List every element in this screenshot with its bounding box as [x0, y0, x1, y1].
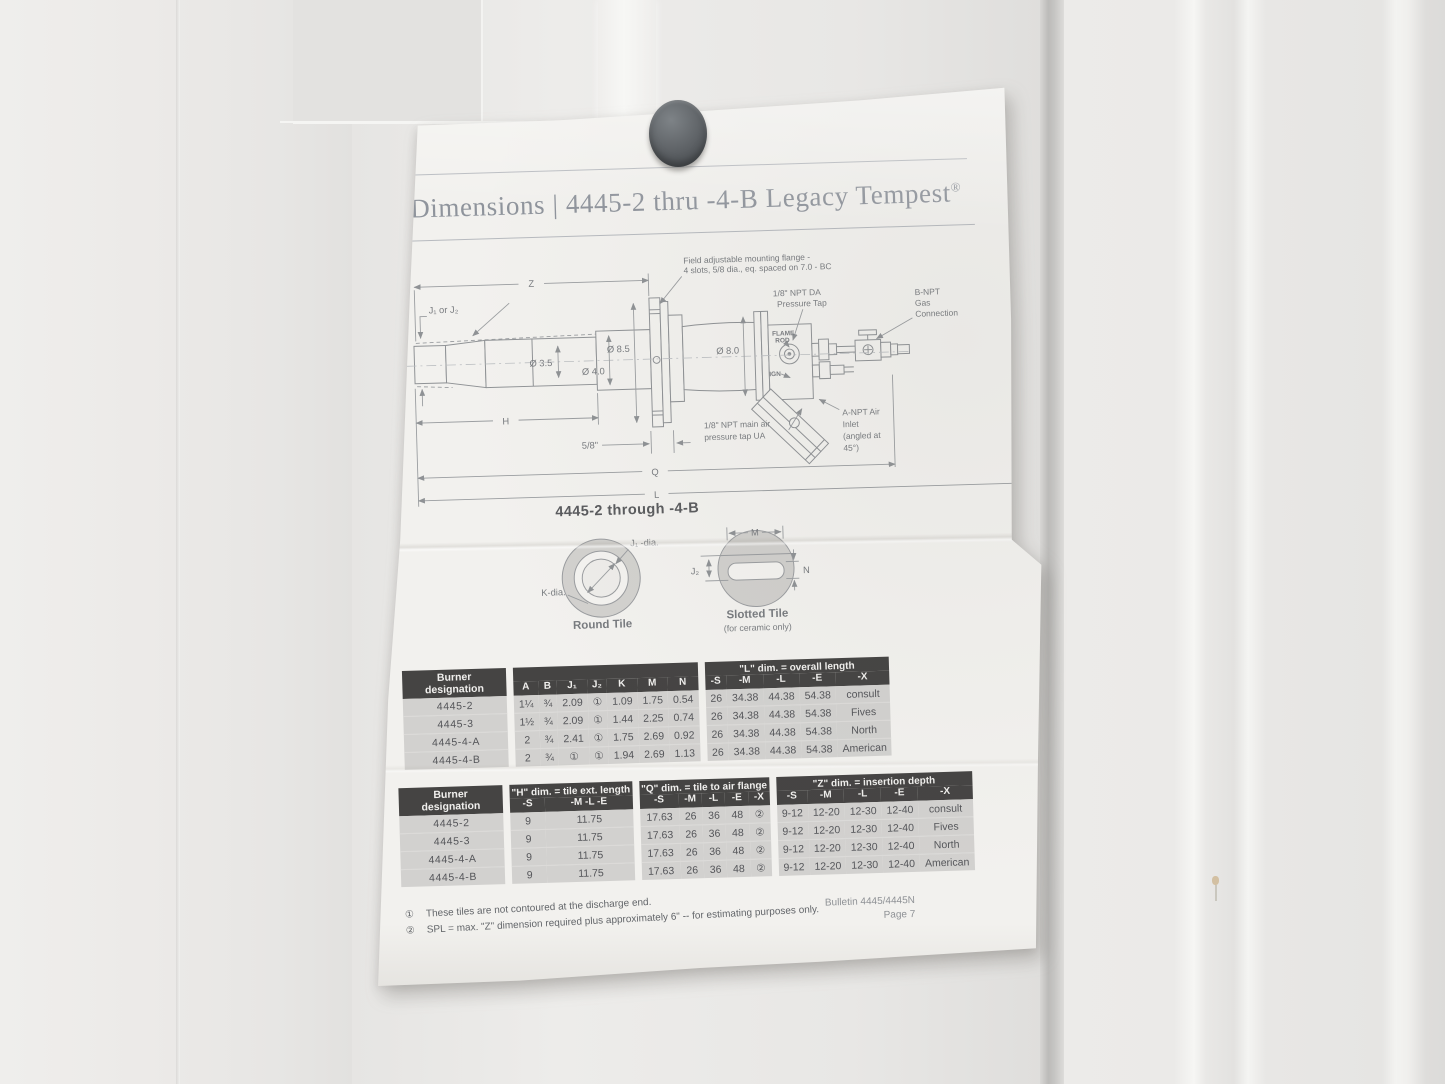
table-cell: 12-40: [881, 801, 918, 820]
table-cell: 12-30: [846, 837, 883, 856]
air-inlet-label-line4: 45°): [843, 442, 859, 452]
magnet-pin: [649, 100, 707, 167]
table-cell: 12-20: [808, 803, 845, 822]
table-cell: 17.63: [640, 808, 680, 827]
table-cell: ①: [589, 728, 609, 747]
burner-dimensions-table-1: Burnerdesignation"L" dim. = overall leng…: [402, 657, 892, 770]
table-cell: ②: [750, 841, 771, 860]
dim-z-label: Z: [528, 279, 534, 289]
table-cell: 44.38: [765, 741, 802, 760]
table-cell: 2.41: [558, 729, 589, 748]
table-cell: American: [837, 738, 892, 757]
table-cell: 44.38: [764, 723, 801, 742]
table-cell: 9: [511, 847, 547, 866]
page-title: Dimensions | 4445-2 thru -4-B Legacy Tem…: [410, 170, 962, 225]
table-cell: 34.38: [728, 724, 765, 743]
table-cell: 48: [727, 859, 751, 877]
table-cell: 44.38: [764, 705, 801, 724]
paper-sheet: Dimensions | 4445-2 thru -4-B Legacy Tem…: [370, 86, 1042, 986]
table-cell: 26: [680, 843, 704, 862]
table-cell: Fives: [836, 702, 891, 722]
table-cell: 44.38: [763, 687, 800, 706]
table-column-header: -E: [799, 672, 836, 687]
table-cell: 12-20: [809, 856, 846, 875]
table-cell: 2.69: [639, 745, 670, 763]
footnote-marker: ①: [405, 907, 418, 924]
table-cell: 9: [512, 865, 548, 884]
table-cell: 1.44: [607, 710, 638, 729]
table-corner-header: Burnerdesignation: [402, 668, 507, 699]
table-cell: 48: [726, 841, 750, 860]
table-column-header: -S: [639, 794, 678, 809]
table-cell: 0.54: [668, 690, 699, 708]
dimensions-table-1-wrap: Burnerdesignation"L" dim. = overall leng…: [402, 657, 892, 770]
table-column-header: K: [606, 678, 637, 693]
table-column-header: -S: [510, 798, 546, 813]
table-cell: 11.75: [547, 863, 635, 883]
table-cell: 54.38: [801, 740, 838, 759]
dimensions-table-2-wrap: Burnerdesignation"H" dim. = tile ext. le…: [398, 771, 974, 887]
dim-dia-4-0-label: Ø 4.0: [582, 366, 605, 377]
table-cell: 36: [704, 860, 728, 878]
table-cell: consult: [918, 799, 973, 818]
table-column-header: -L: [763, 673, 800, 688]
table-cell: 12-40: [882, 818, 919, 837]
table-cell: 1.75: [637, 691, 668, 709]
dim-j1-j2-label: J₁ or J₂: [429, 305, 459, 316]
table-cell: 26: [680, 861, 704, 879]
table-cell: 36: [703, 824, 727, 843]
table-cell: 12-30: [845, 819, 882, 838]
table-cell: American: [920, 853, 975, 872]
table-cell: 2.25: [638, 709, 669, 728]
dim-dia-3-5-label: Ø 3.5: [529, 358, 552, 369]
table-cell: 9-12: [778, 858, 810, 876]
table-cell: 54.38: [799, 686, 836, 705]
table-cell: 1.94: [608, 746, 639, 764]
table-column-header: -L: [844, 788, 881, 803]
slotted-tile-subcaption: (for ceramic only): [724, 621, 792, 633]
table-column-header: B: [538, 680, 557, 695]
table-cell: ②: [750, 859, 771, 877]
table-column-header: J₁: [557, 680, 588, 695]
dim-h-label: H: [502, 416, 509, 426]
table-cell: 12-20: [808, 820, 845, 839]
slotted-tile-j2-label: J₂: [691, 566, 700, 576]
table-cell: 17.63: [641, 861, 681, 880]
table-cell: 9-12: [777, 822, 809, 841]
table-column-header: -X: [748, 791, 769, 806]
table-column-header: J₂: [587, 679, 607, 694]
table-cell: 1.13: [669, 744, 700, 762]
table-cell: North: [837, 720, 892, 740]
ua-tap-label-line2: pressure tap UA: [704, 430, 766, 442]
slotted-tile-n-label: N: [803, 565, 810, 575]
table-cell: consult: [836, 685, 891, 704]
table-cell: ①: [589, 746, 609, 764]
table-column-header: -L: [702, 793, 726, 808]
table-cell: 1.09: [607, 692, 638, 710]
table-cell: ①: [588, 710, 608, 729]
da-tap-label-line1: 1/8" NPT DA: [773, 287, 822, 298]
table-cell: 9: [510, 812, 546, 831]
table-cell: 34.38: [727, 706, 764, 725]
table-cell: 26: [679, 807, 703, 825]
table-cell: 54.38: [800, 722, 837, 741]
header-rule-bottom: [407, 224, 975, 242]
table-cell: 12-20: [809, 838, 846, 857]
bulletin-info: Bulletin 4445/4445N Page 7: [745, 894, 916, 926]
table-cell: ②: [749, 805, 770, 823]
table-cell: 34.38: [727, 688, 764, 707]
table-cell: 9-12: [778, 840, 810, 859]
dim-five-eighths-label: 5/8": [582, 440, 599, 450]
dim-l-label: L: [654, 490, 659, 500]
table-column-header: -S: [776, 790, 807, 805]
dim-q-label: Q: [651, 467, 659, 477]
table-cell: ¾: [538, 694, 557, 712]
table-cell: ①: [587, 693, 607, 711]
table-cell: 12-30: [844, 802, 881, 821]
ua-tap-label-line1: 1/8" NPT main air: [704, 418, 771, 430]
footnote-marker: ②: [405, 923, 418, 940]
table-cell: 0.74: [668, 708, 699, 727]
da-tap-label-line2: Pressure Tap: [777, 298, 827, 309]
table-column-header: M: [637, 677, 668, 692]
table-cell: 12-40: [882, 836, 919, 855]
table-column-header: -M: [726, 674, 763, 689]
table-cell: 1¼: [514, 695, 539, 713]
table-column-header: -M: [678, 793, 702, 808]
page-title-text: Dimensions | 4445-2 thru -4-B Legacy Tem…: [410, 178, 951, 224]
air-inlet-label-line3: (angled at: [843, 430, 882, 441]
table-column-header: N: [667, 676, 698, 691]
table-cell: 2.69: [638, 727, 669, 746]
round-tile-caption: Round Tile: [573, 618, 633, 632]
paper-shadow-wrap: Dimensions | 4445-2 thru -4-B Legacy Tem…: [0, 0, 1445, 1084]
table-column-header: -E: [725, 792, 749, 807]
dim-dia-8-0-label: Ø 8.0: [716, 346, 739, 357]
table-cell: ¾: [539, 712, 558, 731]
slotted-tile-caption: Slotted Tile: [726, 608, 788, 622]
table-cell: 9: [511, 829, 547, 848]
table-cell: 9-12: [777, 804, 809, 822]
table-cell: 12-40: [883, 854, 920, 873]
ign-label: IGN: [769, 371, 781, 378]
table-cell: ②: [749, 823, 770, 842]
table-column-header: -E: [881, 787, 918, 802]
table-column-header: A: [513, 681, 538, 696]
table-column-header: -S: [705, 675, 727, 690]
flame-rod-label-line2: ROD: [775, 337, 790, 344]
table-cell: Fives: [919, 817, 974, 837]
table-cell: 48: [725, 806, 749, 824]
burner-dimensions-table-2: Burnerdesignation"H" dim. = tile ext. le…: [398, 771, 974, 887]
table-cell: ¾: [539, 730, 558, 749]
table-cell: North: [919, 835, 974, 855]
table-cell: 36: [702, 807, 726, 825]
table-cell: 2: [515, 731, 540, 750]
table-cell: 2.09: [557, 694, 588, 712]
table-cell: 1½: [514, 713, 539, 732]
air-inlet-label-line1: A-NPT Air: [842, 406, 880, 417]
dim-dia-8-5-label: Ø 8.5: [607, 344, 630, 355]
gas-connection-label-line3: Connection: [915, 307, 958, 318]
gas-connection-label-line2: Gas: [915, 297, 931, 307]
table-cell: 48: [726, 823, 750, 842]
table-cell: 26: [706, 707, 728, 726]
table-cell: 1.75: [608, 728, 639, 747]
burner-designation-cell: 4445-4-B: [401, 867, 505, 888]
table-cell: 26: [706, 725, 728, 744]
gas-connection-label-line1: B-NPT: [914, 286, 940, 297]
air-inlet-label-line2: Inlet: [843, 419, 860, 429]
table-cell: 26: [707, 743, 729, 761]
table-cell: 17.63: [641, 843, 681, 862]
registered-trademark: ®: [950, 179, 961, 194]
table-cell: 36: [703, 842, 727, 861]
table-cell: 0.92: [669, 726, 700, 745]
table-cell: 26: [705, 689, 727, 707]
table-cell: 26: [679, 825, 703, 844]
round-tile-k-label: K-dia.: [541, 587, 566, 598]
table-cell: 34.38: [728, 742, 765, 761]
table-cell: 54.38: [800, 704, 837, 723]
table-column-header: -M: [807, 789, 844, 804]
photo-scene: Dimensions | 4445-2 thru -4-B Legacy Tem…: [0, 0, 1445, 1084]
table-corner-header: Burnerdesignation: [398, 785, 503, 816]
table-cell: 2.09: [558, 711, 589, 730]
table-cell: 17.63: [640, 825, 680, 844]
table-cell: 12-30: [846, 855, 883, 874]
